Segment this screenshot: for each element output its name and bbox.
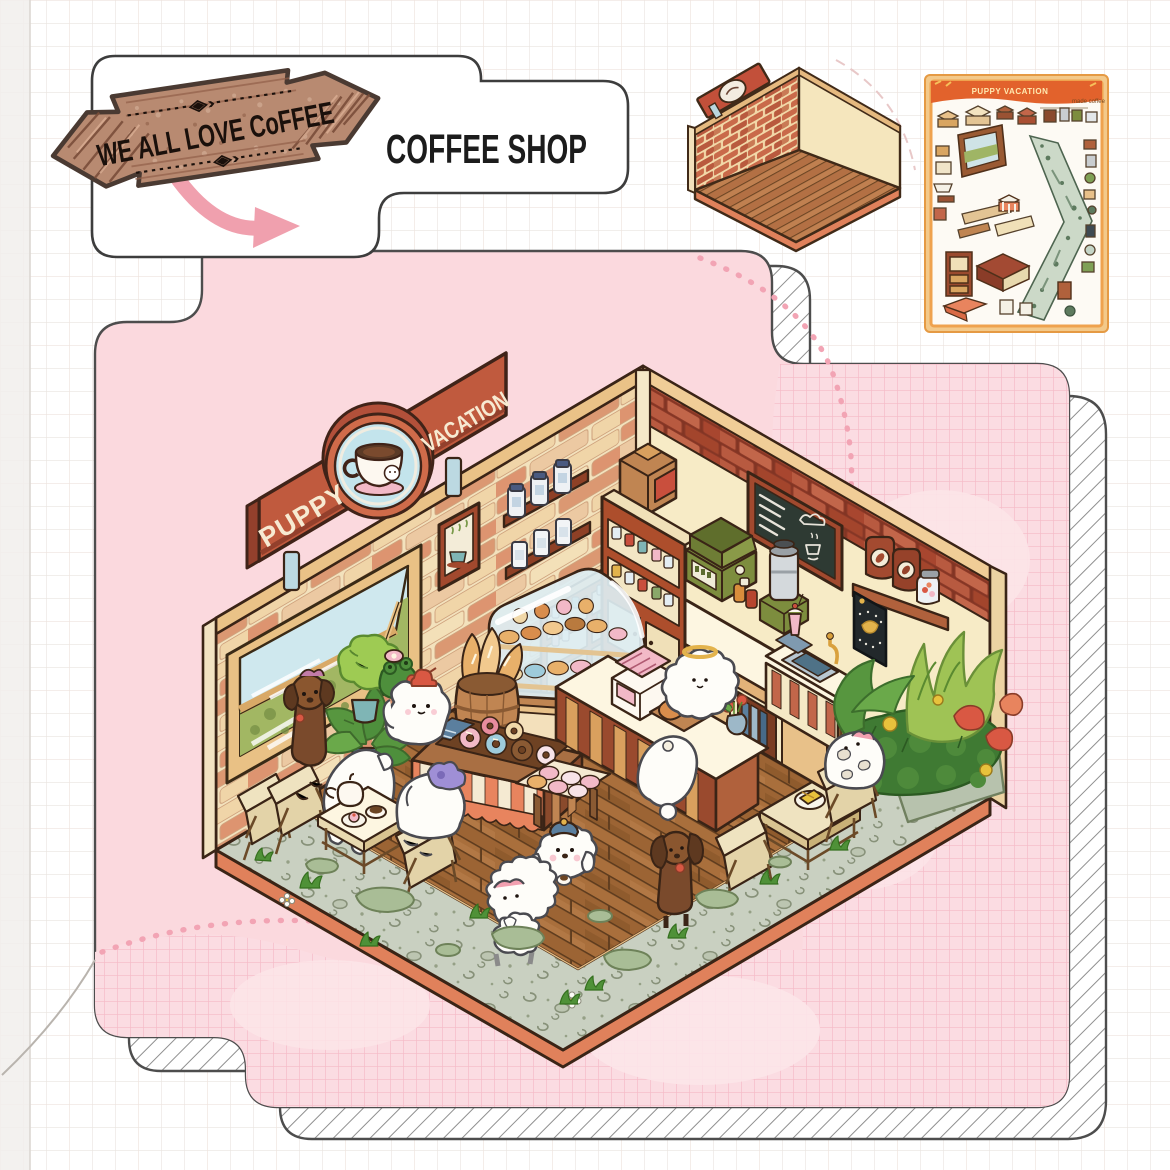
svg-text:made coffee: made coffee	[1072, 99, 1106, 105]
svg-text:PUPPY VACATION: PUPPY VACATION	[972, 87, 1049, 96]
svg-text:COFFEE SHOP: COFFEE SHOP	[386, 126, 587, 172]
